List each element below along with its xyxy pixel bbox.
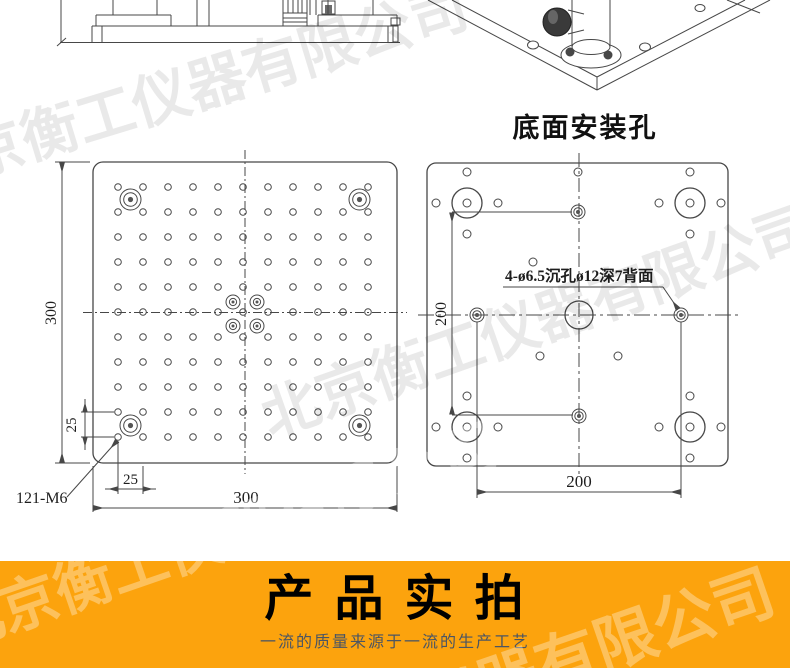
knob	[543, 8, 571, 36]
bottom-view-title: 底面安装孔	[513, 112, 658, 143]
holes-callout-label: 121-M6	[16, 490, 68, 507]
counterbore-callout-label: 4-ø6.5沉孔ø12深7背面	[505, 266, 654, 285]
dim-25-vertical-label: 25	[64, 418, 80, 433]
dim-25-horizontal-label: 25	[123, 472, 138, 488]
section-banner: 产 品 实 拍 一流的质量来源于一流的生产工艺	[0, 561, 790, 668]
dim-200-vertical-label: 200	[433, 302, 450, 326]
product-detail-image: 300 300 25	[0, 0, 790, 668]
dim-200-horizontal-label: 200	[566, 472, 592, 491]
front-view-partial	[57, 0, 400, 46]
banner-title: 产 品 实 拍	[0, 572, 790, 626]
dim-300-vertical-label: 300	[43, 301, 60, 325]
dim-300-horizontal-label: 300	[233, 488, 259, 507]
technical-drawing-canvas: 300 300 25	[0, 0, 790, 561]
banner-subtitle: 一流的质量来源于一流的生产工艺	[0, 628, 790, 652]
isometric-view-partial	[428, 0, 770, 90]
bottom-plate-drawing: 底面安装孔 200 200	[418, 112, 738, 498]
top-plate-drawing: 300 300 25	[16, 150, 407, 512]
